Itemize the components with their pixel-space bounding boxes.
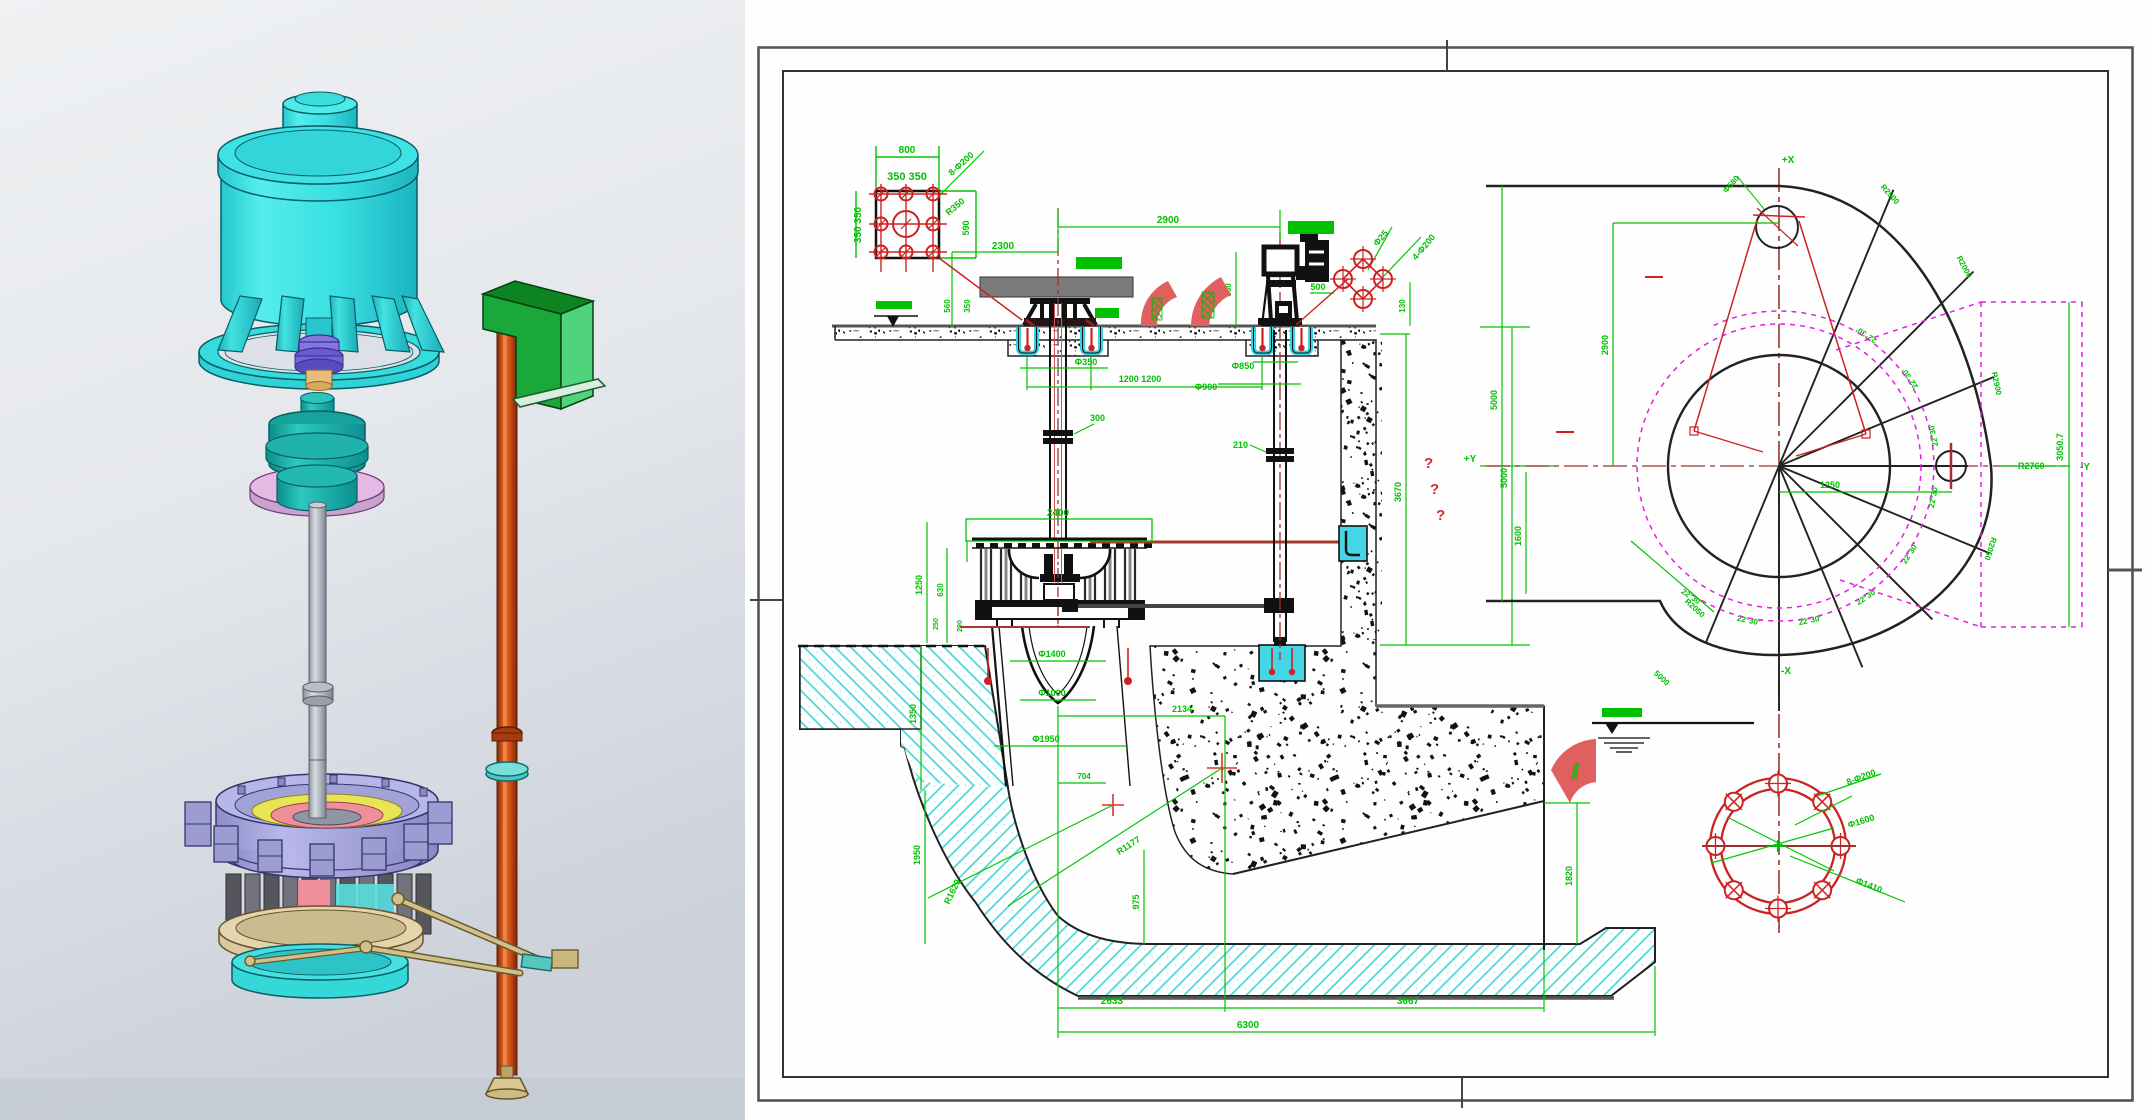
svg-text:350 350: 350 350 (887, 171, 927, 183)
svg-text:2900: 2900 (1600, 335, 1610, 355)
svg-text:5000: 5000 (1489, 390, 1499, 410)
svg-text:1250: 1250 (1820, 480, 1840, 490)
svg-text:800: 800 (899, 145, 916, 156)
svg-text:2134: 2134 (1172, 704, 1192, 714)
svg-text:+Y: +Y (1464, 454, 1477, 465)
svg-text:?: ? (1430, 481, 1439, 498)
svg-text:975: 975 (1131, 894, 1141, 909)
svg-text:Φ1400: Φ1400 (1038, 649, 1065, 659)
svg-text:130: 130 (1398, 299, 1407, 313)
svg-text:6300: 6300 (1237, 1020, 1260, 1031)
svg-text:-X: -X (1781, 666, 1791, 677)
svg-text:Φ850: Φ850 (1232, 361, 1254, 371)
svg-text:630: 630 (936, 583, 945, 597)
svg-text:210: 210 (1233, 440, 1248, 450)
svg-text:1950: 1950 (912, 845, 922, 865)
svg-text:500: 500 (1310, 282, 1325, 292)
svg-text:350 350: 350 350 (853, 206, 864, 243)
svg-text:3667: 3667 (1397, 996, 1420, 1007)
svg-text:590: 590 (961, 220, 971, 235)
svg-text:290: 290 (957, 620, 964, 632)
svg-text:1250: 1250 (914, 575, 924, 595)
svg-text:Φ1000: Φ1000 (1038, 688, 1065, 698)
svg-text:2900: 2900 (1157, 215, 1180, 226)
svg-text:1200 1200: 1200 1200 (1119, 374, 1162, 384)
svg-text:250: 250 (933, 618, 940, 630)
svg-text:2400: 2400 (1047, 508, 1070, 519)
svg-text:?: ? (1424, 455, 1433, 472)
svg-text:350: 350 (963, 299, 972, 313)
svg-text:3670: 3670 (1393, 482, 1403, 502)
svg-text:704: 704 (1077, 772, 1091, 781)
svg-text:5000: 5000 (1499, 468, 1509, 488)
svg-text:Φ350: Φ350 (1075, 357, 1097, 367)
svg-text:1600: 1600 (1513, 526, 1523, 546)
svg-text:2300: 2300 (992, 241, 1015, 252)
svg-text:-Y: -Y (2080, 462, 2090, 473)
svg-text:2633: 2633 (1101, 996, 1124, 1007)
svg-text:3050.7: 3050.7 (2055, 433, 2065, 461)
svg-text:+X: +X (1782, 155, 1795, 166)
svg-text:1820: 1820 (1564, 866, 1574, 886)
svg-text:300: 300 (1090, 413, 1105, 423)
svg-text:?: ? (1436, 507, 1445, 524)
svg-text:560: 560 (943, 299, 952, 313)
svg-text:Φ1950: Φ1950 (1032, 734, 1059, 744)
svg-text:Φ900: Φ900 (1195, 382, 1217, 392)
svg-text:1350: 1350 (908, 704, 918, 724)
